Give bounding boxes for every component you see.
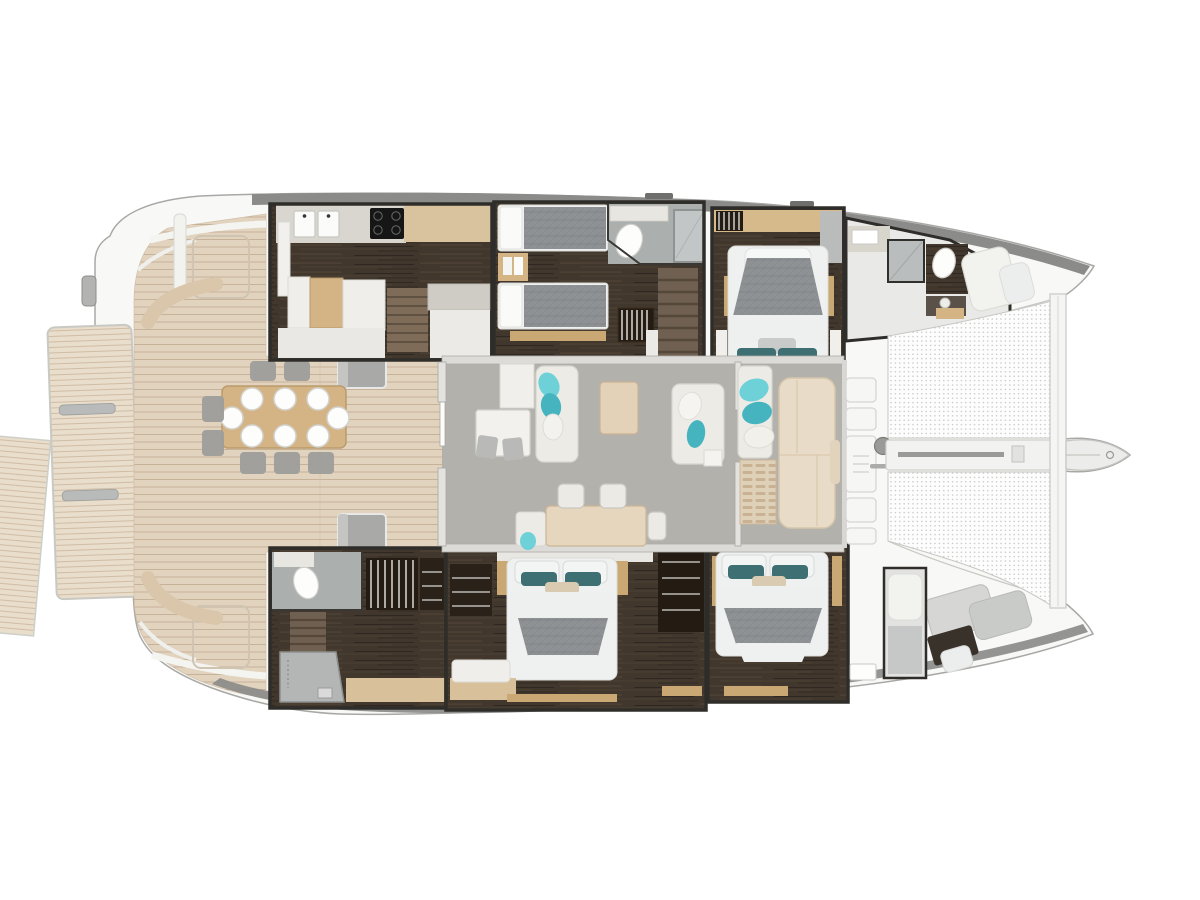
galley-bench — [278, 328, 385, 358]
swim-platform — [0, 325, 142, 639]
fwd-double-bed — [716, 552, 828, 662]
locker-2 — [846, 408, 876, 430]
utility-counter — [346, 678, 446, 702]
bowsprit-tip — [1066, 440, 1129, 470]
roof-vent-2 — [790, 201, 814, 207]
platform-deck — [47, 325, 140, 600]
galley-counter-wood — [404, 205, 492, 242]
galley-cabinet-white-1 — [288, 277, 310, 328]
galley-cabinet-wood — [310, 278, 343, 328]
saloon-dining-table — [546, 506, 646, 546]
dining-chair-1 — [558, 484, 584, 508]
cockpit-settee — [736, 366, 775, 458]
fwd-foot-trim — [724, 686, 788, 696]
port-aft-bathroom — [608, 204, 704, 264]
port-vip-cabin — [712, 208, 844, 374]
sliding-door-leaf — [440, 402, 445, 446]
vip-hanging-locker — [716, 211, 743, 231]
fwd-basin — [940, 298, 950, 308]
nav-cabinet — [500, 364, 534, 408]
mid-double-bed — [507, 558, 617, 680]
fwd-shower — [888, 240, 924, 282]
platform-handle-top — [59, 403, 115, 415]
crew-berth-cushion — [888, 574, 922, 620]
anchor-track — [898, 452, 1004, 457]
galley — [270, 204, 492, 360]
sunpad — [779, 378, 840, 528]
fwd-rail-right — [832, 556, 842, 606]
white-cushion — [543, 414, 563, 440]
stern-cleat — [82, 276, 96, 306]
mid-foot-trim — [507, 694, 617, 702]
cooktop — [370, 208, 404, 239]
mid-wardrobe-column — [658, 548, 704, 696]
bath-vanity — [610, 206, 668, 221]
walkway-fitting — [1012, 446, 1024, 462]
dining-chair-3 — [648, 512, 666, 540]
bowsprit-walkway — [886, 440, 1054, 470]
galley-island — [428, 284, 490, 310]
catamaran-floor-plan — [0, 0, 1200, 900]
locker-4 — [846, 528, 876, 544]
platform-side-wedge — [0, 434, 51, 636]
galley-stairs — [387, 288, 428, 352]
sunpad-bolster — [830, 440, 840, 484]
crew-lower — [888, 626, 922, 674]
nav-chair-2 — [502, 437, 524, 461]
saloon-aft-wall-lower — [438, 468, 446, 546]
starboard-forward-cabin — [708, 532, 848, 702]
teak-grate — [740, 460, 776, 524]
crew-sink — [850, 664, 876, 680]
twin-nightstand — [498, 253, 528, 281]
side-box — [704, 450, 722, 466]
bench-teal-cushion — [520, 532, 536, 550]
galley-sink-right — [318, 211, 339, 237]
mid-shelf-cabinet — [450, 564, 492, 616]
fwd-bath-sink — [852, 230, 878, 244]
stbd-bathroom — [272, 550, 362, 612]
stbd-hanging-locker — [366, 558, 444, 610]
single-bed-2 — [498, 283, 608, 329]
locker-3 — [846, 498, 876, 522]
starboard-mid-cabin — [446, 544, 706, 710]
floor-plan-canvas — [0, 0, 1200, 900]
galley-cabinet-white-2 — [343, 280, 385, 330]
dining-chair-2 — [600, 484, 626, 508]
coffee-table — [600, 382, 638, 434]
single-bed-1 — [498, 205, 608, 251]
washing-machine — [280, 652, 344, 702]
roof-vent-1 — [645, 193, 673, 199]
mid-cabin-sofa — [450, 660, 516, 700]
galley-sink-left — [294, 211, 315, 237]
locker-1 — [846, 378, 876, 402]
saloon-aft-wall-upper — [438, 362, 446, 402]
fwd-bath-mat — [936, 308, 964, 319]
port-twin-cabin — [494, 202, 704, 360]
saloon-sofa-port — [534, 366, 578, 462]
forward-cockpit — [736, 360, 847, 548]
saloon-wall-top — [442, 356, 844, 364]
galley-island-base — [430, 310, 490, 358]
shower — [674, 210, 704, 262]
stbd-stairs — [290, 612, 326, 652]
stbd-vanity — [274, 552, 314, 567]
saloon — [438, 356, 847, 552]
nav-chair-1 — [476, 435, 499, 460]
saloon-sofa-forward — [672, 384, 724, 466]
bed-base-trim — [510, 331, 606, 341]
platform-handle-bottom — [62, 489, 118, 501]
vip-double-bed — [728, 246, 828, 374]
